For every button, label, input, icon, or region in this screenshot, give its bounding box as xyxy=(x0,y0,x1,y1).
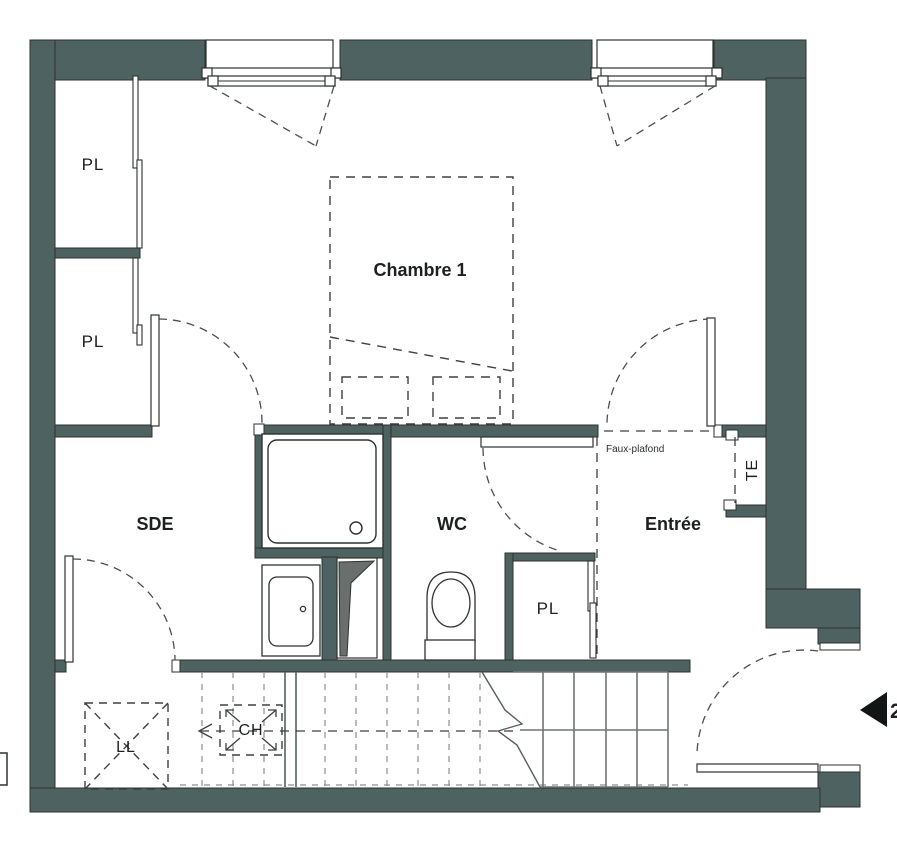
wall-vanity-divider xyxy=(322,557,337,662)
toilet-bowl xyxy=(432,579,470,627)
stairs-solid-treads xyxy=(513,672,668,787)
sde-door-leaf xyxy=(65,556,73,662)
pl-middle-slider-2 xyxy=(137,325,142,345)
level-arrow-label: 2 xyxy=(890,701,897,722)
window-1-swing xyxy=(210,86,334,146)
toilet xyxy=(425,572,475,660)
equipment-label-ch: CH xyxy=(221,723,281,739)
wall-sde-door-stub xyxy=(55,660,66,672)
bed-pillow-right xyxy=(433,377,500,418)
te-stub-cap-bottom xyxy=(724,500,736,510)
faux-plafond-boundary xyxy=(597,431,735,660)
window-swing-lines xyxy=(210,86,715,146)
closet-label-pl-entree: PL xyxy=(518,600,578,617)
washbasin xyxy=(262,565,320,656)
entrance-sill-top xyxy=(820,643,860,650)
floor-plan-drawing xyxy=(0,0,897,848)
window-1 xyxy=(202,40,341,86)
technical-duct xyxy=(337,558,377,658)
threshold-entree-door xyxy=(714,425,722,437)
room-label-sde: SDE xyxy=(115,515,195,533)
level-arrow-icon xyxy=(860,692,887,727)
bed-pillow-left xyxy=(342,377,408,418)
closet-label-pl-middle: PL xyxy=(63,333,123,350)
pl-middle-slider-1 xyxy=(133,258,138,333)
wall-pl-bottom xyxy=(55,425,152,437)
equipment-label-ll: LL xyxy=(96,740,156,756)
entrance-sill-bottom xyxy=(820,765,860,772)
left-edge-exterior-element xyxy=(0,753,7,785)
shower-drain xyxy=(350,522,362,534)
wc-door-swing xyxy=(483,448,560,551)
chambre-door-left-leaf xyxy=(151,315,159,426)
threshold-sde xyxy=(172,660,180,672)
room-label-wc: WC xyxy=(412,515,492,533)
stairwell-edge xyxy=(285,672,296,787)
window-2 xyxy=(591,40,722,86)
room-label-chambre1: Chambre 1 xyxy=(350,261,490,279)
wall-pl-entree-left xyxy=(505,553,513,672)
bed-fold-line xyxy=(330,337,512,371)
floor-plan: Chambre 1 SDE WC Entrée PL PL PL LL CH T… xyxy=(0,0,897,848)
wall-shower-left xyxy=(255,433,262,552)
wall-sde-wc xyxy=(383,425,391,672)
toilet-tank xyxy=(425,640,475,660)
pl-top-slider-2 xyxy=(137,160,142,248)
wall-pl-entree-top xyxy=(505,553,595,561)
te-stub-cap-top xyxy=(726,430,738,440)
entrance-door-leaf xyxy=(697,764,818,772)
wc-door-leaf xyxy=(481,437,593,447)
closet-label-pl-top: PL xyxy=(63,156,123,173)
interior-walls xyxy=(55,248,766,672)
washbasin-drain xyxy=(300,606,305,611)
pl-entree-slider-2 xyxy=(590,603,596,658)
chambre-door-right-leaf xyxy=(707,318,715,426)
entrance-door-swing xyxy=(697,650,818,753)
chambre-door-left-swing xyxy=(159,319,262,424)
equipment-label-te: TE xyxy=(745,454,761,486)
shower xyxy=(262,434,383,548)
bed xyxy=(330,177,513,424)
wall-shower-bottom xyxy=(255,548,385,558)
wall-pl-divider xyxy=(55,248,140,258)
wall-entree-north xyxy=(718,425,766,437)
window-2-swing xyxy=(600,86,715,146)
room-label-entree: Entrée xyxy=(633,515,713,533)
chambre-door-right-swing xyxy=(607,319,711,426)
bed-outline xyxy=(330,177,513,424)
wall-corridor xyxy=(172,660,690,672)
wall-wc-north xyxy=(385,425,598,437)
pl-top-slider-1 xyxy=(133,76,138,168)
sde-door-swing xyxy=(73,559,175,660)
annotation-faux-plafond: Faux-plafond xyxy=(606,445,676,455)
